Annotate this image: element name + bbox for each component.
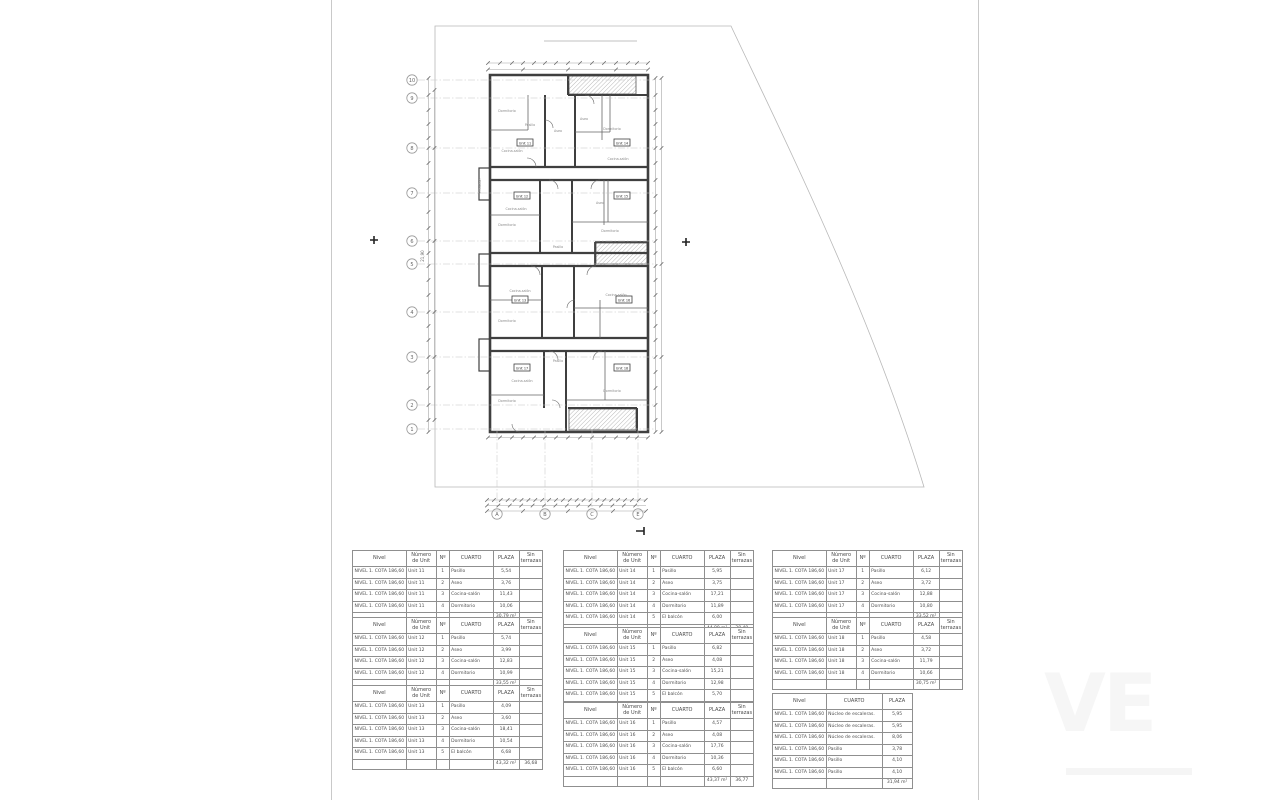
unit-14-areas-table: NivelNúmero de UnitNºCUARTOPLAZASin terr… [563, 550, 754, 635]
table-cell [519, 725, 542, 737]
table-cell: NIVEL 1. COTA 186,60 [353, 725, 407, 737]
table-cell: Aseo [869, 578, 913, 590]
table-cell: 12,88 [913, 590, 939, 602]
table-cell [939, 645, 962, 657]
table-cell [939, 668, 962, 680]
table-cell: 8,06 [882, 733, 912, 745]
table-cell: Pasillo [449, 567, 493, 579]
table-row: NIVEL 1. COTA 186,60Unit 174Dormitorio10… [773, 601, 963, 613]
svg-text:5: 5 [410, 262, 413, 268]
table-cell [869, 680, 913, 690]
table-cell: Dormitorio [449, 736, 493, 748]
table-row: NIVEL 1. COTA 186,60Unit 134Dormitorio10… [353, 736, 543, 748]
table-cell: Unit 17 [826, 601, 856, 613]
svg-text:1: 1 [410, 427, 413, 433]
table-cell [519, 657, 542, 669]
table-row: NIVEL 1. COTA 186,60Unit 153Cocina-salón… [564, 667, 754, 679]
table-row: NIVEL 1. COTA 186,60Unit 114Dormitorio10… [353, 601, 543, 613]
table-cell: 4,08 [704, 655, 730, 667]
table-header-cell: Sin terrazas [730, 628, 753, 644]
table-row: NIVEL 1. COTA 186,60Unit 133Cocina-salón… [353, 725, 543, 737]
table-cell [939, 601, 962, 613]
svg-text:Pasillo: Pasillo [553, 245, 563, 249]
table-cell: NIVEL 1. COTA 186,60 [773, 590, 827, 602]
table-header-cell: Nº [856, 618, 869, 634]
table-cell: Unit 13 [406, 736, 436, 748]
table-row: NIVEL 1. COTA 186,60Núcleo de escaleras.… [773, 710, 913, 722]
table-cell: El balcón [660, 690, 704, 702]
table-cell: Unit 11 [406, 601, 436, 613]
table-cell: Unit 15 [617, 678, 647, 690]
table-cell: El balcón [660, 613, 704, 625]
table-cell: Unit 16 [617, 730, 647, 742]
table-cell [773, 680, 827, 690]
table-cell: 11,79 [913, 657, 939, 669]
table-cell: 3,99 [493, 645, 519, 657]
table-cell [730, 578, 753, 590]
table-cell [519, 578, 542, 590]
table-cell: Pasillo [660, 567, 704, 579]
table-cell: 10,66 [913, 668, 939, 680]
table-cell: NIVEL 1. COTA 186,60 [564, 578, 618, 590]
areas-table: NivelNúmero de UnitNºCUARTOPLAZASin terr… [772, 550, 963, 623]
table-cell: 4 [647, 753, 660, 765]
table-cell: NIVEL 1. COTA 186,60 [564, 753, 618, 765]
table-cell: Unit 16 [617, 719, 647, 731]
table-cell: Unit 12 [406, 645, 436, 657]
table-row: NIVEL 1. COTA 186,60Unit 142Aseo3,75 [564, 578, 754, 590]
table-cell: NIVEL 1. COTA 186,60 [564, 601, 618, 613]
table-cell [939, 578, 962, 590]
table-cell: Dormitorio [660, 601, 704, 613]
table-cell [647, 776, 660, 786]
table-header-cell: Nº [436, 551, 449, 567]
table-cell: NIVEL 1. COTA 186,60 [773, 645, 827, 657]
walls [479, 75, 648, 432]
table-cell: 3 [436, 725, 449, 737]
table-header-cell: Número de Unit [617, 628, 647, 644]
table-cell: NIVEL 1. COTA 186,60 [564, 730, 618, 742]
table-cell: 2 [647, 578, 660, 590]
table-cell: 43,32 m² [493, 759, 519, 769]
table-cell [939, 567, 962, 579]
svg-text:El balcón: El balcón [478, 179, 482, 194]
svg-text:Cocina-salón: Cocina-salón [505, 207, 526, 211]
svg-text:Pasillo: Pasillo [553, 359, 563, 363]
table-cell: NIVEL 1. COTA 186,60 [773, 657, 827, 669]
table-cell: 10,36 [704, 753, 730, 765]
areas-table: NivelNúmero de UnitNºCUARTOPLAZASin terr… [563, 627, 754, 712]
table-cell: 4 [436, 736, 449, 748]
table-cell: 1 [856, 567, 869, 579]
table-cell: 3 [647, 742, 660, 754]
table-row: NIVEL 1. COTA 186,60Núcleo de escaleras.… [773, 721, 913, 733]
table-cell [519, 668, 542, 680]
table-cell [519, 590, 542, 602]
table-row: NIVEL 1. COTA 186,60Unit 154Dormitorio12… [564, 678, 754, 690]
table-header-cell: Nivel [773, 618, 827, 634]
common-areas-table: NivelCUARTOPLAZANIVEL 1. COTA 186,60Núcl… [772, 693, 913, 789]
table-cell: Unit 13 [406, 725, 436, 737]
table-row: NIVEL 1. COTA 186,60Unit 111Pasillo5,54 [353, 567, 543, 579]
table-cell: NIVEL 1. COTA 186,60 [353, 578, 407, 590]
table-cell: 4 [856, 601, 869, 613]
svg-text:Pasillo: Pasillo [525, 123, 535, 127]
table-cell [939, 590, 962, 602]
table-cell: Núcleo de escaleras. [826, 721, 882, 733]
table-cell: Unit 14 [617, 601, 647, 613]
table-header-cell: PLAZA [913, 618, 939, 634]
table-cell: 4,58 [913, 634, 939, 646]
table-cell: Cocina-salón [449, 590, 493, 602]
svg-text:Cocina-salón: Cocina-salón [605, 293, 626, 297]
table-cell [353, 759, 407, 769]
table-cell: Dormitorio [869, 601, 913, 613]
table-total-row: 43,37 m²36,77 [564, 776, 754, 786]
table-row: NIVEL 1. COTA 186,60Unit 183Cocina-salón… [773, 657, 963, 669]
table-row: NIVEL 1. COTA 186,60Unit 141Pasillo5,95 [564, 567, 754, 579]
table-header-cell: Sin terrazas [939, 618, 962, 634]
table-cell [856, 680, 869, 690]
table-cell [730, 719, 753, 731]
table-cell: 4 [856, 668, 869, 680]
table-cell: 30,75 m² [913, 680, 939, 690]
svg-text:9: 9 [410, 96, 413, 102]
table-row: NIVEL 1. COTA 186,60Unit 171Pasillo6,12 [773, 567, 963, 579]
table-cell: 3 [647, 667, 660, 679]
table-cell: 4,08 [704, 730, 730, 742]
table-cell: NIVEL 1. COTA 186,60 [773, 567, 827, 579]
table-cell: NIVEL 1. COTA 186,60 [353, 702, 407, 714]
table-cell: Dormitorio [660, 678, 704, 690]
table-cell: 3,75 [704, 578, 730, 590]
table-header-cell: PLAZA [913, 551, 939, 567]
svg-text:Unit 13: Unit 13 [514, 298, 526, 302]
table-cell [519, 702, 542, 714]
table-cell: Unit 13 [406, 702, 436, 714]
table-cell [519, 601, 542, 613]
table-header-cell: CUARTO [660, 551, 704, 567]
areas-table: NivelCUARTOPLAZANIVEL 1. COTA 186,60Núcl… [772, 693, 913, 789]
table-cell: 2 [856, 578, 869, 590]
table-cell: El balcón [660, 765, 704, 777]
table-cell [730, 753, 753, 765]
table-row: NIVEL 1. COTA 186,60Unit 155El balcón5,7… [564, 690, 754, 702]
table-cell: 4 [647, 601, 660, 613]
svg-text:21,90: 21,90 [420, 250, 425, 262]
table-cell: Unit 18 [826, 645, 856, 657]
table-header-cell: PLAZA [704, 628, 730, 644]
table-cell: 11,89 [704, 601, 730, 613]
table-row: NIVEL 1. COTA 186,60Unit 162Aseo4,08 [564, 730, 754, 742]
unit-15-areas-table: NivelNúmero de UnitNºCUARTOPLAZASin terr… [563, 627, 754, 712]
table-cell [730, 765, 753, 777]
table-cell: Unit 12 [406, 657, 436, 669]
table-header-cell: Nivel [353, 551, 407, 567]
table-cell [730, 601, 753, 613]
unit-18-areas-table: NivelNúmero de UnitNºCUARTOPLAZASin terr… [772, 617, 963, 690]
table-header-cell: Sin terrazas [519, 686, 542, 702]
table-cell [730, 730, 753, 742]
table-cell: Unit 15 [617, 690, 647, 702]
table-cell [730, 613, 753, 625]
table-cell: Unit 18 [826, 657, 856, 669]
table-cell: Unit 14 [617, 567, 647, 579]
table-cell: 36,68 [519, 759, 542, 769]
table-cell: NIVEL 1. COTA 186,60 [564, 678, 618, 690]
table-cell: 6,12 [913, 567, 939, 579]
table-cell [730, 690, 753, 702]
svg-text:Cocina-salón: Cocina-salón [607, 157, 628, 161]
svg-text:Dormitorio: Dormitorio [498, 223, 516, 227]
table-cell: 1 [436, 567, 449, 579]
table-row: NIVEL 1. COTA 186,60Unit 165El balcón6,6… [564, 765, 754, 777]
table-cell: NIVEL 1. COTA 186,60 [353, 634, 407, 646]
table-row: NIVEL 1. COTA 186,60Pasillo3,78 [773, 744, 913, 756]
table-cell: 3 [647, 590, 660, 602]
areas-table: NivelNúmero de UnitNºCUARTOPLAZASin terr… [352, 550, 543, 623]
table-cell [939, 634, 962, 646]
table-cell: 6,68 [493, 748, 519, 760]
svg-text:A: A [495, 512, 499, 518]
table-cell: 5 [436, 748, 449, 760]
table-header-cell: Número de Unit [406, 618, 436, 634]
table-row: NIVEL 1. COTA 186,60Unit 112Aseo3,76 [353, 578, 543, 590]
table-cell: Núcleo de escaleras. [826, 710, 882, 722]
unit-17-areas-table: NivelNúmero de UnitNºCUARTOPLAZASin terr… [772, 550, 963, 623]
table-cell: 2 [436, 578, 449, 590]
table-cell: 5,74 [493, 634, 519, 646]
table-header-cell: Número de Unit [617, 551, 647, 567]
table-cell: Pasillo [869, 567, 913, 579]
table-row: NIVEL 1. COTA 186,60Pasillo4,10 [773, 767, 913, 779]
svg-text:7: 7 [410, 191, 413, 197]
unit-11-areas-table: NivelNúmero de UnitNºCUARTOPLAZASin terr… [352, 550, 543, 623]
table-header-cell: Nivel [564, 551, 618, 567]
table-cell: NIVEL 1. COTA 186,60 [353, 668, 407, 680]
svg-text:6: 6 [410, 239, 413, 245]
table-cell: Unit 13 [406, 748, 436, 760]
table-cell: 3 [436, 590, 449, 602]
table-cell: 3,72 [913, 645, 939, 657]
table-cell: Cocina-salón [449, 725, 493, 737]
grid-cols: ABCE [492, 430, 643, 519]
table-cell: Unit 14 [617, 590, 647, 602]
table-cell: Unit 11 [406, 590, 436, 602]
table-cell: Unit 11 [406, 578, 436, 590]
table-cell [449, 759, 493, 769]
table-cell: Cocina-salón [660, 590, 704, 602]
table-cell: 2 [647, 730, 660, 742]
table-cell: NIVEL 1. COTA 186,60 [564, 655, 618, 667]
unit-13-areas-table: NivelNúmero de UnitNºCUARTOPLAZASin terr… [352, 685, 543, 770]
table-cell: Cocina-salón [660, 667, 704, 679]
svg-text:Dormitorio: Dormitorio [603, 127, 621, 131]
svg-text:4: 4 [410, 310, 413, 316]
table-cell: 43,37 m² [704, 776, 730, 786]
table-cell: Unit 18 [826, 634, 856, 646]
table-cell: Aseo [660, 578, 704, 590]
table-cell: Pasillo [449, 634, 493, 646]
table-header-cell: Número de Unit [617, 703, 647, 719]
areas-table: NivelNúmero de UnitNºCUARTOPLAZASin terr… [352, 617, 543, 690]
table-cell: NIVEL 1. COTA 186,60 [564, 690, 618, 702]
table-cell [826, 779, 882, 789]
table-total-row: 43,32 m²36,68 [353, 759, 543, 769]
table-cell: Pasillo [826, 767, 882, 779]
table-row: NIVEL 1. COTA 186,60Unit 161Pasillo4,57 [564, 719, 754, 731]
table-header-cell: CUARTO [449, 686, 493, 702]
table-header-cell: Nº [647, 628, 660, 644]
table-row: NIVEL 1. COTA 186,60Unit 181Pasillo4,58 [773, 634, 963, 646]
table-cell [730, 567, 753, 579]
table-cell: Aseo [660, 655, 704, 667]
table-header-cell: Nivel [564, 628, 618, 644]
table-cell: NIVEL 1. COTA 186,60 [773, 668, 827, 680]
table-cell: 2 [436, 713, 449, 725]
table-cell [564, 776, 618, 786]
table-row: NIVEL 1. COTA 186,60Pasillo4,10 [773, 756, 913, 768]
table-cell: Pasillo [869, 634, 913, 646]
table-cell: Pasillo [826, 756, 882, 768]
table-row: NIVEL 1. COTA 186,60Unit 132Aseo3,60 [353, 713, 543, 725]
table-cell: 5,54 [493, 567, 519, 579]
svg-text:E: E [636, 512, 639, 518]
table-row: NIVEL 1. COTA 186,60Unit 131Pasillo4,09 [353, 702, 543, 714]
table-row: NIVEL 1. COTA 186,60Unit 173Cocina-salón… [773, 590, 963, 602]
table-cell: 10,06 [493, 601, 519, 613]
table-cell [519, 634, 542, 646]
table-cell: Unit 17 [826, 578, 856, 590]
watermark: VE [1044, 664, 1155, 744]
table-cell: Unit 12 [406, 634, 436, 646]
svg-text:3: 3 [410, 355, 413, 361]
table-cell: NIVEL 1. COTA 186,60 [564, 742, 618, 754]
table-header-cell: Nº [856, 551, 869, 567]
table-header-cell: Nivel [353, 686, 407, 702]
table-cell: Aseo [449, 713, 493, 725]
table-cell: NIVEL 1. COTA 186,60 [564, 590, 618, 602]
table-cell: 12,98 [704, 678, 730, 690]
table-cell: 2 [647, 655, 660, 667]
table-cell: Pasillo [826, 744, 882, 756]
table-cell: 6,60 [704, 765, 730, 777]
table-header-cell: Nº [647, 703, 660, 719]
table-cell: NIVEL 1. COTA 186,60 [353, 657, 407, 669]
table-cell [436, 759, 449, 769]
table-cell [519, 748, 542, 760]
table-header-cell: Nivel [564, 703, 618, 719]
table-header-cell: Nivel [353, 618, 407, 634]
unit-16-areas-table: NivelNúmero de UnitNºCUARTOPLAZASin terr… [563, 702, 754, 787]
table-cell: 3 [436, 657, 449, 669]
svg-text:Dormitorio: Dormitorio [498, 319, 516, 323]
table-cell: 1 [856, 634, 869, 646]
table-header-cell: CUARTO [660, 628, 704, 644]
svg-text:Unit 18: Unit 18 [616, 366, 628, 370]
table-cell: Pasillo [660, 644, 704, 656]
table-row: NIVEL 1. COTA 186,60Unit 151Pasillo6,82 [564, 644, 754, 656]
table-cell: NIVEL 1. COTA 186,60 [773, 756, 827, 768]
table-cell [730, 667, 753, 679]
table-cell: 4,10 [882, 756, 912, 768]
site-boundary [435, 26, 924, 487]
svg-text:Aseo: Aseo [596, 201, 604, 205]
table-cell: 5 [647, 765, 660, 777]
table-cell: 15,21 [704, 667, 730, 679]
table-cell: 6,82 [704, 644, 730, 656]
table-cell: Unit 16 [617, 765, 647, 777]
table-cell: NIVEL 1. COTA 186,60 [773, 733, 827, 745]
table-cell: 31,94 m² [882, 779, 912, 789]
areas-table: NivelNúmero de UnitNºCUARTOPLAZASin terr… [563, 550, 754, 635]
table-cell: 3 [856, 657, 869, 669]
svg-text:B: B [543, 512, 547, 518]
table-cell: 4 [436, 601, 449, 613]
table-row: NIVEL 1. COTA 186,60Unit 182Aseo3,72 [773, 645, 963, 657]
section-markers [370, 236, 690, 535]
table-cell: NIVEL 1. COTA 186,60 [773, 721, 827, 733]
table-header-cell: Nivel [773, 551, 827, 567]
table-cell: 1 [436, 702, 449, 714]
table-cell: Cocina-salón [869, 657, 913, 669]
areas-table: NivelNúmero de UnitNºCUARTOPLAZASin terr… [352, 685, 543, 770]
table-cell: Dormitorio [869, 668, 913, 680]
table-total-row: 30,75 m² [773, 680, 963, 690]
table-cell: NIVEL 1. COTA 186,60 [773, 767, 827, 779]
table-cell: 4,09 [493, 702, 519, 714]
svg-text:Unit 14: Unit 14 [616, 141, 628, 145]
floor-plan-drawing: 10987654321 ABCE 21,90 Unit 11Unit 14Uni… [330, 0, 980, 545]
table-row: NIVEL 1. COTA 186,60Unit 121Pasillo5,74 [353, 634, 543, 646]
table-cell: NIVEL 1. COTA 186,60 [353, 736, 407, 748]
table-cell: Pasillo [660, 719, 704, 731]
table-header-cell: PLAZA [493, 686, 519, 702]
table-cell: 17,76 [704, 742, 730, 754]
table-cell: NIVEL 1. COTA 186,60 [353, 567, 407, 579]
table-header-cell: Número de Unit [406, 686, 436, 702]
table-cell: 4,10 [882, 767, 912, 779]
table-cell: 1 [647, 567, 660, 579]
table-header-cell: CUARTO [449, 618, 493, 634]
table-cell: NIVEL 1. COTA 186,60 [564, 613, 618, 625]
table-cell: NIVEL 1. COTA 186,60 [564, 765, 618, 777]
table-row: NIVEL 1. COTA 186,60Unit 164Dormitorio10… [564, 753, 754, 765]
table-cell: Unit 15 [617, 655, 647, 667]
table-cell: NIVEL 1. COTA 186,60 [773, 710, 827, 722]
table-header-cell: Sin terrazas [939, 551, 962, 567]
table-cell [519, 567, 542, 579]
table-cell: 17,21 [704, 590, 730, 602]
table-cell: NIVEL 1. COTA 186,60 [564, 644, 618, 656]
table-cell: NIVEL 1. COTA 186,60 [773, 578, 827, 590]
table-cell: Cocina-salón [449, 657, 493, 669]
table-header-cell: Nº [647, 551, 660, 567]
table-cell [730, 644, 753, 656]
table-cell: NIVEL 1. COTA 186,60 [353, 601, 407, 613]
table-header-cell: Nº [436, 618, 449, 634]
table-header-cell: Nivel [773, 694, 827, 710]
table-row: NIVEL 1. COTA 186,60Unit 143Cocina-salón… [564, 590, 754, 602]
table-row: NIVEL 1. COTA 186,60Núcleo de escaleras.… [773, 733, 913, 745]
table-cell: 4,57 [704, 719, 730, 731]
table-cell: 5,70 [704, 690, 730, 702]
table-cell: NIVEL 1. COTA 186,60 [353, 590, 407, 602]
svg-text:Dormitorio: Dormitorio [603, 389, 621, 393]
svg-text:Unit 17: Unit 17 [516, 366, 528, 370]
table-cell: 6,00 [704, 613, 730, 625]
svg-text:Dormitorio: Dormitorio [498, 399, 516, 403]
